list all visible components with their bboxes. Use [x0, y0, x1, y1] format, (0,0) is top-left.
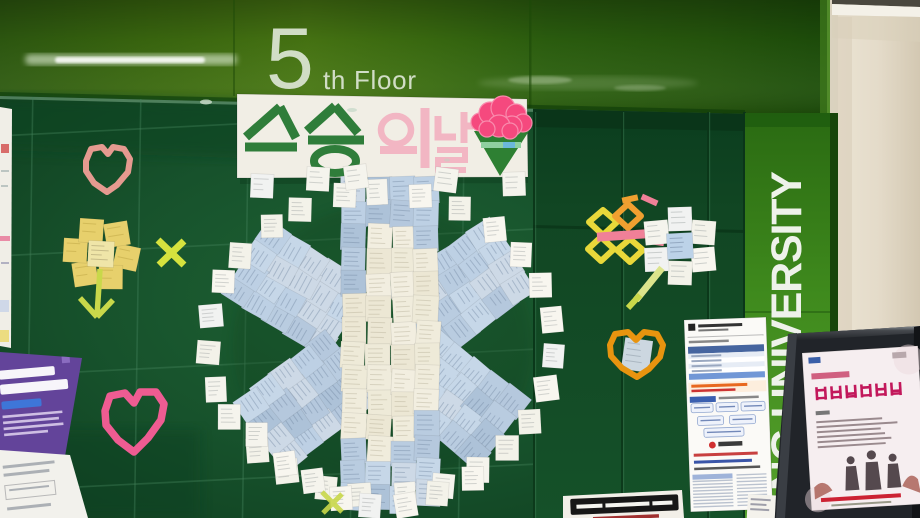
svg-text:5: 5	[266, 11, 314, 107]
svg-text:th Floor: th Floor	[323, 65, 416, 95]
